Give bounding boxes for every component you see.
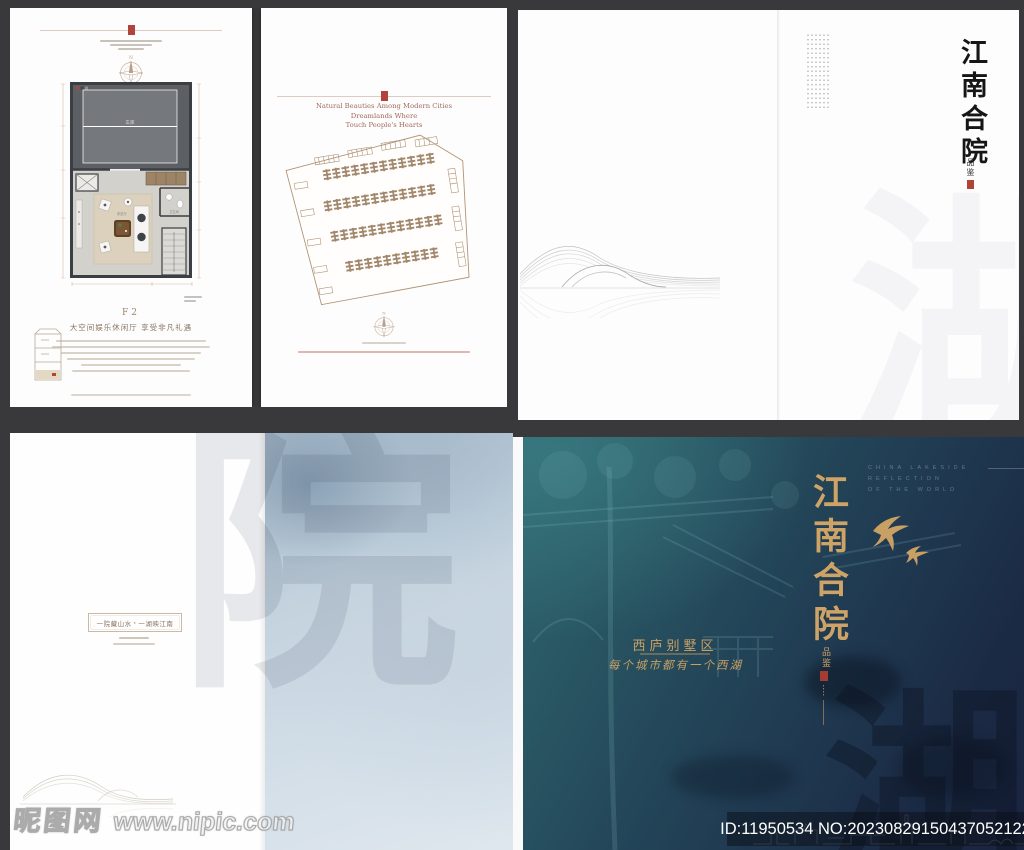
vertical-rule xyxy=(970,208,971,232)
mountain-lineart xyxy=(18,755,178,817)
siteplan-caption-line xyxy=(261,342,507,344)
svg-text:N: N xyxy=(129,55,133,61)
caption-rule xyxy=(988,468,1024,469)
cover-fold xyxy=(259,433,265,850)
site-plan xyxy=(281,134,485,306)
vertical-rule xyxy=(823,700,824,725)
ink-silhouettes xyxy=(523,437,1024,850)
red-seal-icon xyxy=(820,671,828,681)
living-label: 家庭厅 xyxy=(117,211,128,216)
caption-right: 一湖映江南 xyxy=(138,618,173,628)
sofa xyxy=(134,206,149,252)
bath-label: 卫生间 xyxy=(169,209,179,214)
dotted-pattern xyxy=(807,34,831,108)
image-id-text: ID:11950534 NO:20230829150437052122 xyxy=(720,820,1024,839)
siteplan-english-caption: Natural Beauties Among Modern Cities Dre… xyxy=(261,102,507,131)
siteplan-disclaimer-line xyxy=(261,351,507,353)
caption-separator: · xyxy=(134,619,137,627)
panel-white-cover: 江南合院 品鉴 湖 xyxy=(518,10,1019,420)
scale-note xyxy=(184,296,202,302)
floorplan-page: N xyxy=(10,8,252,407)
cover-subtitle: 品鉴 xyxy=(965,158,976,178)
header-caption-lines xyxy=(10,40,252,50)
panel-gutter xyxy=(513,437,523,850)
background-character: 湖 xyxy=(848,188,1019,420)
watercolor-page xyxy=(265,433,513,850)
garage-label: 车库 xyxy=(126,119,135,126)
panel-blue-spread: 院 一院藏山水 · 一湖映江南 xyxy=(10,433,513,850)
cover-slogan: 每个城市都有一个西湖 xyxy=(583,657,768,673)
plan-code: F2 xyxy=(10,308,252,318)
image-id-bar: ID:11950534 NO:20230829150437052122 xyxy=(727,812,1024,846)
siteplan-page: Natural Beauties Among Modern Cities Dre… xyxy=(261,8,507,407)
panel-floorplan-spread: N xyxy=(10,8,507,407)
seal-divider xyxy=(40,24,222,36)
caption-left: 一院藏山水 xyxy=(97,618,132,628)
tiny-vertical-caption xyxy=(970,193,971,205)
stock-image-preview: N xyxy=(0,0,1024,850)
seal-divider xyxy=(277,90,491,102)
mountain-lineart xyxy=(520,210,720,318)
svg-text:N: N xyxy=(382,311,386,316)
tiny-vertical-caption xyxy=(823,685,824,697)
swallow-icon xyxy=(905,545,931,567)
cover-subtitle: 品鉴 xyxy=(819,647,832,669)
caption-subtext-lines xyxy=(88,637,180,645)
red-seal-icon xyxy=(967,180,974,189)
plan-footnote-line xyxy=(10,394,252,396)
building-section-diagram xyxy=(28,326,68,386)
district-english-line xyxy=(640,653,710,655)
cover-english-caption: CHINA LAKESIDE REFLECTION OF THE WORLD xyxy=(868,463,969,496)
compass-icon: N xyxy=(371,310,397,340)
red-seal-icon xyxy=(128,25,135,35)
floor-plan: 车库 卫生间 xyxy=(56,78,206,290)
red-seal-icon xyxy=(381,91,388,101)
caption-box: 一院藏山水 · 一湖映江南 xyxy=(88,613,182,632)
cover-fold xyxy=(777,10,780,420)
district-title: 西庐别墅区 xyxy=(620,635,730,654)
cover-title: 江南合院 xyxy=(952,38,991,170)
panel-dark-cover: CHINA LAKESIDE REFLECTION OF THE WORLD 江… xyxy=(523,437,1024,850)
cover-title: 江南合院 xyxy=(802,473,854,649)
